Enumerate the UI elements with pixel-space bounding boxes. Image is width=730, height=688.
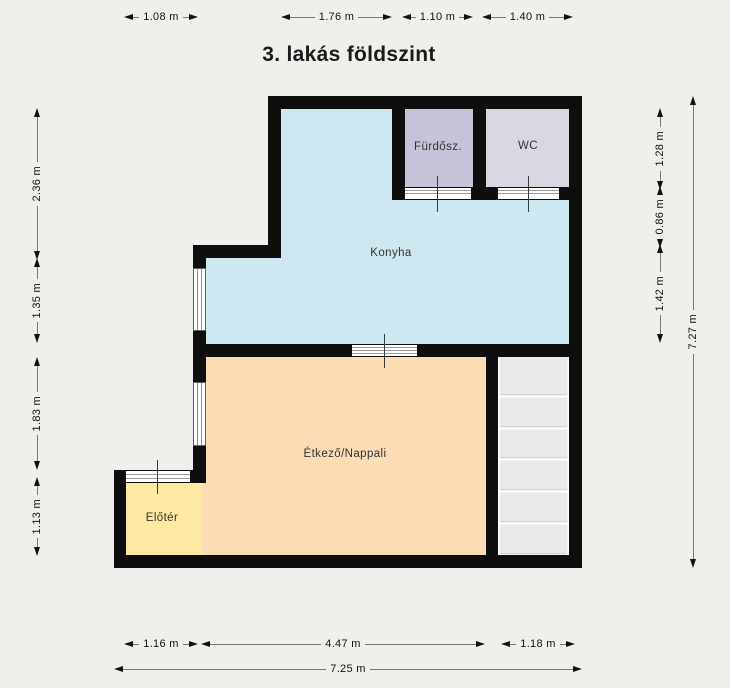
stair-step [500,524,567,553]
dim-line [660,117,661,127]
stair-step [500,460,567,489]
window-pane-lines [197,383,202,445]
dim-label: 1.16 m [139,638,182,650]
dim-label: 1.35 m [31,279,43,322]
arrow-up-icon [657,186,663,195]
dim-top-1: 1.08 m [124,10,198,24]
door-track-line [126,474,190,475]
arrow-right-icon [189,14,198,20]
dim-bottom-total: 7.25 m [114,662,582,676]
dim-bottom-2: 4.47 m [201,637,485,651]
dim-line [491,17,506,18]
dim-label: 2.36 m [31,162,43,205]
arrow-up-icon [690,96,696,105]
arrow-right-icon [189,641,198,647]
label-etkezo: Étkező/Nappali [245,448,445,460]
dim-label: 1.08 m [139,11,182,23]
dim-left-3: 1.83 m [30,357,44,470]
dim-label: 7.27 m [687,310,699,353]
door-wc-leaf-line [528,176,529,212]
dim-label: 1.28 m [654,127,666,170]
dim-line [370,669,573,670]
dim-line [358,17,383,18]
room-konyha-upper [281,109,392,200]
arrow-left-icon [482,14,491,20]
arrow-down-icon [690,559,696,568]
passage-leaf-line [384,334,385,368]
dim-label: 1.40 m [506,11,549,23]
dim-label: 1.76 m [315,11,358,23]
dim-label: 1.13 m [31,495,43,538]
wall-outer-left-upper [268,96,281,258]
dim-line [693,105,694,310]
door-furdosz-leaf-line [437,176,438,212]
dim-line [37,366,38,392]
dim-line [37,322,38,334]
arrow-left-icon [281,14,290,20]
door-track-line [126,478,190,479]
dim-right-1: 1.28 m [653,108,667,190]
arrow-left-icon [114,666,123,672]
door-entrance [126,471,190,482]
arrow-up-icon [34,477,40,486]
stair-step [500,429,567,458]
dim-bottom-1: 1.16 m [124,637,198,651]
dim-label: 1.10 m [416,11,459,23]
arrow-right-icon [564,14,573,20]
room-konyha-left [206,258,281,344]
dim-bottom-3: 1.18 m [501,637,575,651]
dim-line [37,486,38,495]
dim-top-4: 1.40 m [482,10,573,24]
dim-right-3: 1.42 m [653,244,667,343]
entrance-leaf-line [157,460,158,494]
dim-line [660,315,661,334]
dim-label: 0.86 m [654,195,666,238]
dim-left-4: 1.13 m [30,477,44,556]
dim-line [693,354,694,559]
dim-line [210,644,321,645]
dim-line [37,117,38,162]
wall-outer-right [569,96,582,568]
arrow-up-icon [34,108,40,117]
window-konyha [193,268,206,331]
arrow-left-icon [402,14,411,20]
room-konyha-main [281,200,569,344]
floorplan-canvas: 3. lakás földszint [0,0,730,688]
dim-right-total: 7.27 m [686,96,700,568]
window-pane-lines [197,269,202,330]
dim-label: 7.25 m [326,663,369,675]
dim-line [123,669,326,670]
arrow-down-icon [34,334,40,343]
arrow-left-icon [501,641,510,647]
dim-top-3: 1.10 m [402,10,473,24]
plan-title: 3. lakás földszint [49,43,649,67]
dim-line [365,644,476,645]
arrow-right-icon [566,641,575,647]
window-etkezo [193,382,206,446]
stair-step [500,492,567,521]
dim-label: 1.42 m [654,272,666,315]
arrow-down-icon [657,334,663,343]
door-furdosz [405,188,471,199]
staircase [498,353,569,555]
dim-top-2: 1.76 m [281,10,392,24]
dim-label: 4.47 m [321,638,364,650]
arrow-up-icon [34,357,40,366]
label-wc: WC [488,140,568,152]
dim-line [660,171,661,181]
arrow-up-icon [34,258,40,267]
arrow-right-icon [464,14,473,20]
stair-step [500,355,567,394]
door-track-line [405,193,471,194]
dim-label: 1.18 m [516,638,559,650]
arrow-up-icon [657,244,663,253]
stair-step [500,397,567,426]
dim-line [290,17,315,18]
arrow-right-icon [476,641,485,647]
arrow-left-icon [124,641,133,647]
dim-line [660,253,661,272]
dim-line [37,435,38,461]
label-eloter: Előtér [112,512,212,524]
arrow-left-icon [124,14,133,20]
arrow-right-icon [383,14,392,20]
arrow-down-icon [34,547,40,556]
dim-left-2: 1.35 m [30,258,44,343]
dim-line [549,17,564,18]
door-track-line [405,190,471,191]
dim-line [37,538,38,547]
dim-line [37,206,38,251]
dim-label: 1.83 m [31,392,43,435]
wall-outer-bottom [114,555,582,568]
wall-outer-top [268,96,582,109]
arrow-up-icon [657,108,663,117]
wall-stairs-left [486,344,498,568]
dim-left-1: 2.36 m [30,108,44,260]
arrow-left-icon [201,641,210,647]
label-furdosz: Fürdősz. [398,141,478,153]
wall-step [193,245,281,258]
dim-line [37,267,38,279]
arrow-down-icon [34,461,40,470]
arrow-right-icon [573,666,582,672]
label-konyha: Konyha [331,247,451,259]
dim-right-2: 0.86 m [653,190,667,244]
